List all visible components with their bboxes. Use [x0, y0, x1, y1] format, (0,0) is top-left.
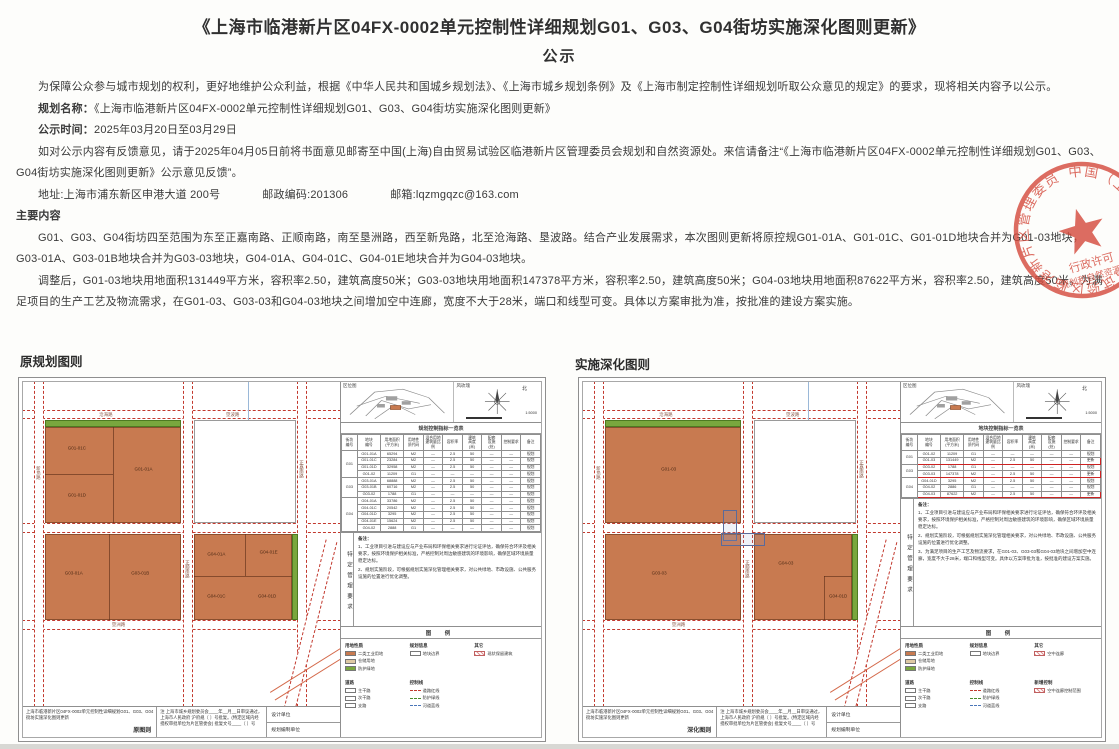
- column-header: 备注: [1081, 435, 1101, 451]
- table-cell: —: [501, 491, 521, 498]
- legend-item-label: 主干路: [358, 688, 371, 694]
- legend-group-title: 控制线: [970, 680, 1033, 686]
- legend-group-title: 道路: [345, 680, 408, 686]
- road: [583, 620, 900, 630]
- table-cell: —: [482, 471, 502, 478]
- titleblock-sheet-name: 原图则: [133, 727, 151, 735]
- road: [23, 410, 340, 420]
- table-cell: —: [1061, 484, 1081, 491]
- page-title: 《上海市临港新片区04FX-0002单元控制性详细规划G01、G03、G04街坊…: [30, 13, 1089, 38]
- table-cell: 50: [462, 464, 482, 471]
- legend-item: 现状保留建筑: [474, 651, 537, 657]
- table-cell: G03-03: [917, 471, 940, 478]
- legend-swatch: [905, 688, 916, 693]
- note-item: 2、规划实施阶段，可根据规划实施深化管理相关要求，对公共绿地、市政设施、公共服务…: [918, 533, 1097, 547]
- block-group-cell: G03: [342, 478, 358, 498]
- updated-parcel-row: G01-03131449M2—2.550——更新: [902, 457, 1101, 464]
- column-header: 混合用地 建筑量比例: [423, 435, 443, 451]
- scalebar-segment: [1053, 417, 1062, 420]
- table-cell: 2.5: [1003, 491, 1023, 498]
- table-cell: 68888: [381, 478, 404, 485]
- sheet-titleblock: 上海市临港新片区04FX-0002单元控制性详细规划G01、G03、G04街坊实…: [23, 706, 340, 737]
- parcel-label: G04-01E: [260, 550, 278, 555]
- table-cell: G01-01D: [357, 464, 380, 471]
- table-cell: 更新: [1081, 491, 1101, 498]
- block-group-cell: G01: [342, 451, 358, 478]
- land-parcel: [605, 427, 741, 523]
- sheet-titleblock: 上海市临港新片区04FX-0002单元控制性详细规划G01、G03、G04街坊实…: [583, 706, 900, 737]
- legend-item-label: 道路红线: [983, 688, 1000, 694]
- windrose-cell: 风玫瑰北1:5000: [454, 382, 541, 422]
- parcel-label: G01-01A: [134, 467, 152, 472]
- windrose-label: 风玫瑰: [1016, 383, 1030, 389]
- legend-group: 用地性质二类工业用地仓储用地防护绿地: [905, 643, 968, 673]
- legend-group: 其它现状保留建筑: [474, 643, 537, 673]
- table-cell: —: [1022, 484, 1042, 491]
- contact-line: 地址:上海市浦东新区申港大道 200号邮政编码:201306邮箱:lqzmgqz…: [16, 185, 1103, 207]
- note-item: 1、工业项目引进与建设应与产业布局和环保相关要求进行论证评估，确保符合环评及相关…: [918, 510, 1097, 531]
- column-header: 容积率: [1003, 435, 1023, 451]
- plan-drawing: 沧海路垦波路垦洲路新凫路正顺南路正嘉南路G01-03G03-03G04-03G0…: [583, 382, 900, 706]
- table-cell: —: [1003, 464, 1023, 471]
- deepened-plan-map-sheet: 沧海路垦波路垦洲路新凫路正顺南路正嘉南路G01-03G03-03G04-03G0…: [578, 377, 1106, 742]
- location-inset-label: 区位图: [903, 383, 917, 389]
- table-cell: M2: [964, 457, 984, 464]
- table-cell: —: [983, 464, 1003, 471]
- legend-item-label: 防护绿线: [983, 695, 1000, 701]
- table-cell: G01-01C: [357, 457, 380, 464]
- table-cell: —: [423, 457, 443, 464]
- table-cell: —: [1042, 471, 1062, 478]
- table-cell: 60716: [381, 484, 404, 491]
- road-name-label: 正嘉南路: [298, 460, 304, 478]
- legend-item: 防护绿线: [970, 695, 1033, 701]
- table-cell: G1: [964, 484, 984, 491]
- notes-title: 备注：: [918, 502, 1097, 509]
- indicator-table-title: 地块控制指标一览表: [901, 423, 1101, 434]
- table-cell: —: [482, 525, 502, 532]
- table-row: G04G04-01D3295M2—2.550——规划: [902, 478, 1101, 485]
- table-cell: M2: [404, 484, 424, 491]
- table-cell: M2: [404, 518, 424, 525]
- legend-section: 图 例用地性质二类工业用地仓储用地防护绿地规划信息地块边界其它空中连廊道路主干路…: [901, 627, 1101, 737]
- road-name-label: 新凫路: [595, 466, 601, 480]
- legend-group-title: 规划信息: [970, 643, 1033, 649]
- parcel-label: G01-01C: [68, 446, 86, 451]
- parcel-label: G03-01A: [65, 571, 83, 576]
- legend-swatch: [410, 698, 421, 699]
- table-cell: G01-02: [917, 451, 940, 458]
- table-cell: —: [482, 511, 502, 518]
- indicator-table-section: 地块控制指标一览表街坊 编号地块 编号用地面积 (平方米)用地性 质代码混合用地…: [901, 423, 1101, 499]
- titleblock-project-name: 上海市临港新片区04FX-0002单元控制性详细规划G01、G03、G04街坊实…: [26, 709, 153, 721]
- legend-item-label: 仓储用地: [358, 658, 375, 664]
- legend-group-title: 其它: [1034, 643, 1097, 649]
- green-buffer-strip: [605, 420, 741, 427]
- design-unit-label: 设计单位: [827, 707, 900, 723]
- legend-item: 道路红线: [970, 688, 1033, 694]
- location-inset-sketch: [341, 385, 453, 420]
- legend-item: 河道蓝线: [970, 703, 1033, 709]
- table-cell: —: [1042, 491, 1062, 498]
- table-cell: 规划: [521, 471, 541, 478]
- table-cell: 规划: [1081, 451, 1101, 458]
- indicator-table-section: 规划控制指标一览表街坊 编号地块 编号用地面积 (平方米)用地性 质代码混合用地…: [341, 423, 541, 533]
- table-cell: G04-02: [357, 525, 380, 532]
- table-cell: —: [443, 471, 463, 478]
- legend-item-label: 河道蓝线: [423, 703, 440, 709]
- table-cell: 1788: [941, 464, 964, 471]
- publicity-time-label: 公示时间：: [38, 124, 94, 136]
- table-cell: 2.5: [443, 457, 463, 464]
- legend-group-title: 控制线: [410, 680, 473, 686]
- table-cell: 规划: [521, 491, 541, 498]
- email-text: 邮箱:lqzmgqzc@163.com: [390, 189, 519, 201]
- legend-item-label: 防护绿地: [358, 666, 375, 672]
- river-line: [248, 382, 252, 421]
- notes-section: 特定管理要求备注：1、工业项目引进与建设应与产业布局和环保相关要求进行论证评估，…: [901, 499, 1101, 627]
- table-cell: G1: [404, 525, 424, 532]
- table-cell: —: [482, 518, 502, 525]
- green-buffer-strip: [45, 420, 181, 427]
- info-column: 区位图风玫瑰北1:5000地块控制指标一览表街坊 编号地块 编号用地面积 (平方…: [900, 382, 1101, 737]
- table-cell: —: [1003, 451, 1023, 458]
- table-cell: —: [1003, 484, 1023, 491]
- legend-group: 控制线道路红线防护绿线河道蓝线: [410, 680, 473, 710]
- column-header: 控制要求: [501, 435, 521, 451]
- table-cell: —: [1061, 491, 1081, 498]
- column-header: 备注: [521, 435, 541, 451]
- updated-parcel-row: G04-0387622M2—2.550——更新: [902, 491, 1101, 498]
- publicity-time-value: 2025年03月20日至03月29日: [94, 124, 237, 136]
- table-cell: G1: [964, 464, 984, 471]
- road-name-label: 沧海路: [99, 412, 113, 418]
- titleblock-project-cell: 上海市临港新片区04FX-0002单元控制性详细规划G01、G03、G04街坊实…: [23, 707, 157, 737]
- road: [23, 620, 340, 630]
- table-cell: —: [482, 464, 502, 471]
- table-row: G03G03-021788G1—————规划: [902, 464, 1101, 471]
- windrose-cell: 风玫瑰北1:5000: [1014, 382, 1101, 422]
- legend-swatch: [345, 666, 356, 671]
- legend-item-label: 仓储用地: [918, 658, 935, 664]
- legend-item: 仓储用地: [905, 658, 968, 664]
- road-name-label: 垦波路: [786, 412, 800, 418]
- parcel-divider: [245, 534, 246, 576]
- scalebar-segment: [1035, 417, 1044, 420]
- table-cell: —: [443, 491, 463, 498]
- legend-swatch: [410, 690, 421, 691]
- table-cell: G04-01C: [357, 505, 380, 512]
- legend-item: 次干路: [345, 695, 408, 701]
- legend-section: 图 例用地性质二类工业用地仓储用地防护绿地规划信息地块边界其它现状保留建筑道路主…: [341, 627, 541, 737]
- compiling-unit-label: 规划编制单位: [267, 723, 340, 738]
- road-name-label: 垦洲路: [672, 622, 686, 628]
- table-cell: 规划: [521, 451, 541, 458]
- table-cell: —: [482, 505, 502, 512]
- table-cell: M2: [404, 451, 424, 458]
- table-row: G04-022888G1—————规划: [342, 525, 541, 532]
- table-cell: G04-02: [917, 484, 940, 491]
- road-name-label: 正嘉南路: [858, 460, 864, 478]
- legend-swatch: [905, 703, 916, 708]
- table-cell: G01-01A: [357, 451, 380, 458]
- table-row: G01G01-0211209G1—————规划: [902, 451, 1101, 458]
- road-name-label: 新凫路: [35, 466, 41, 480]
- table-cell: —: [1042, 478, 1062, 485]
- intro-paragraph: 为保障公众参与城市规划的权利，更好地维护公众利益，根据《中华人民共和国城乡规划法…: [16, 77, 1103, 99]
- parcel-label: G04-01D: [258, 593, 276, 598]
- table-cell: —: [1022, 464, 1042, 471]
- north-label: 北: [522, 385, 527, 392]
- table-cell: —: [423, 478, 443, 485]
- publicity-time-line: 公示时间：2025年03月20日至03月29日: [16, 120, 1103, 142]
- road-name-label: 垦洲路: [112, 622, 126, 628]
- legend-swatch: [905, 651, 916, 656]
- legend-grid: 用地性质二类工业用地仓储用地防护绿地规划信息地块边界其它现状保留建筑道路主干路次…: [341, 639, 541, 714]
- table-cell: 2.5: [443, 484, 463, 491]
- table-cell: M2: [404, 478, 424, 485]
- original-plan-map-sheet: 沧海路垦波路垦洲路新凫路正顺南路正嘉南路G01-01CG01-01AG01-01…: [18, 377, 546, 742]
- block-group-cell: G04: [342, 498, 358, 532]
- table-cell: —: [501, 478, 521, 485]
- legend-item: 二类工业用地: [905, 651, 968, 657]
- parcel-divider: [194, 576, 292, 577]
- legend-title: 图 例: [341, 627, 541, 639]
- drawing-column: 沧海路垦波路垦洲路新凫路正顺南路正嘉南路G01-01CG01-01AG01-01…: [23, 382, 340, 737]
- table-cell: 2.5: [443, 464, 463, 471]
- table-cell: 2.5: [443, 505, 463, 512]
- legend-item-label: 空中连廊: [1047, 651, 1064, 657]
- table-cell: —: [423, 498, 443, 505]
- table-cell: —: [462, 471, 482, 478]
- legend-item: 主干路: [905, 688, 968, 694]
- table-cell: —: [423, 491, 443, 498]
- road-name-label: 正顺南路: [744, 560, 750, 578]
- table-cell: 2888: [381, 525, 404, 532]
- table-row: G04-01E15624M2—2.550——规划: [342, 518, 541, 525]
- table-cell: G03-02: [917, 464, 940, 471]
- special-management-vertical-label: 特定管理要求: [341, 533, 354, 626]
- table-cell: 2.5: [443, 478, 463, 485]
- legend-item-label: 防护绿地: [918, 666, 935, 672]
- titleblock-approval-cell: 注 上海市城乡规划委员会____年__月__日审议通过，上海市人民政府 沪府规〔…: [717, 707, 827, 737]
- legend-item-label: 地块边界: [983, 651, 1000, 657]
- legend-swatch: [970, 705, 981, 706]
- legend-item: 地块边界: [410, 651, 473, 657]
- table-cell: 更新: [1081, 471, 1101, 478]
- block-group-cell: G04: [902, 478, 918, 498]
- legend-item: 防护绿地: [345, 666, 408, 672]
- table-row: G01-0211209G1—————规划: [342, 471, 541, 478]
- legend-group-title: 道路: [905, 680, 968, 686]
- table-cell: M2: [404, 464, 424, 471]
- main-content-paragraph-2: 调整后，G01-03地块用地面积131449平方米，容积率2.50，建筑高度50…: [16, 271, 1103, 314]
- indicator-table: 街坊 编号地块 编号用地面积 (平方米)用地性 质代码混合用地 建筑量比例容积率…: [341, 434, 541, 532]
- legend-swatch: [345, 703, 356, 708]
- table-cell: G01-02: [357, 471, 380, 478]
- titleblock-sheet-name: 深化图则: [687, 727, 711, 735]
- table-cell: 更新: [1081, 457, 1101, 464]
- table-row: G03-01B60716M2—2.550——规划: [342, 484, 541, 491]
- legend-item-label: 现状保留建筑: [487, 651, 512, 657]
- legend-group-title: 其它: [474, 643, 537, 649]
- scalebar-segment: [466, 417, 475, 420]
- legend-item-label: 支路: [918, 703, 926, 709]
- column-header: 用地性 质代码: [964, 435, 984, 451]
- table-cell: —: [501, 525, 521, 532]
- legend-swatch: [905, 696, 916, 701]
- titleblock-project-name: 上海市临港新片区04FX-0002单元控制性详细规划G01、G03、G04街坊实…: [586, 709, 713, 721]
- table-cell: 11209: [381, 471, 404, 478]
- column-header: 地块 编号: [917, 435, 940, 451]
- column-header: 地块 编号: [357, 435, 380, 451]
- column-header: 配套 设施 (处): [1042, 435, 1062, 451]
- table-cell: 2.5: [1003, 471, 1023, 478]
- scalebar: [1026, 417, 1062, 420]
- table-cell: —: [423, 471, 443, 478]
- right-map-section-label: 实施深化图则: [575, 354, 650, 373]
- legend-swatch: [345, 651, 356, 656]
- legend-swatch: [970, 690, 981, 691]
- column-header: 街坊 编号: [902, 435, 918, 451]
- inset-row: 区位图风玫瑰北1:5000: [901, 382, 1101, 423]
- table-cell: —: [983, 451, 1003, 458]
- column-header: 配套 设施 (处): [482, 435, 502, 451]
- legend-item: 仓储用地: [345, 658, 408, 664]
- legend-swatch: [410, 705, 421, 706]
- table-cell: —: [983, 491, 1003, 498]
- notes-body: 备注：1、工业项目引进与建设应与产业布局和环保相关要求进行论证评估，确保符合环评…: [354, 533, 541, 626]
- legend-item-label: 防护绿线: [423, 695, 440, 701]
- legend-group-title: 用地性质: [905, 643, 968, 649]
- legend-item: 主干路: [345, 688, 408, 694]
- inset-row: 区位图风玫瑰北1:5000: [341, 382, 541, 423]
- table-cell: G04-03: [917, 491, 940, 498]
- windrose-label: 风玫瑰: [456, 383, 470, 389]
- indicator-table-header: 街坊 编号地块 编号用地面积 (平方米)用地性 质代码混合用地 建筑量比例容积率…: [902, 435, 1101, 451]
- titleblock-approval-line: 授权审批单位为片区管委会) 批复文号____〔 〕号: [720, 721, 823, 727]
- legend-swatch: [905, 666, 916, 671]
- scalebar-segment: [475, 417, 484, 420]
- column-header: 用地面积 (平方米): [941, 435, 964, 451]
- table-row: G04-022886G1—————规划: [902, 484, 1101, 491]
- table-cell: —: [501, 505, 521, 512]
- block-group-cell: G03: [902, 464, 918, 477]
- parcel-divider: [824, 576, 825, 620]
- table-cell: 2.5: [443, 511, 463, 518]
- road: [23, 523, 340, 533]
- table-cell: 131449: [941, 457, 964, 464]
- table-row: G01-01C23284M2—2.550——规划: [342, 457, 541, 464]
- parcel-label: G04-01A: [207, 551, 225, 556]
- table-cell: G03-01A: [357, 478, 380, 485]
- road-name-label: 垦波路: [226, 412, 240, 418]
- table-cell: M2: [404, 505, 424, 512]
- drawing-column: 沧海路垦波路垦洲路新凫路正顺南路正嘉南路G01-03G03-03G04-03G0…: [583, 382, 900, 737]
- table-cell: 1788: [381, 491, 404, 498]
- table-cell: —: [482, 478, 502, 485]
- table-cell: 50: [462, 505, 482, 512]
- table-cell: 65294: [381, 451, 404, 458]
- notes-section: 特定管理要求备注：1、工业项目引进与建设应与产业布局和环保相关要求进行论证评估，…: [341, 533, 541, 627]
- table-cell: —: [983, 484, 1003, 491]
- road: [583, 410, 900, 420]
- table-cell: 50: [1022, 491, 1042, 498]
- table-cell: 87622: [941, 491, 964, 498]
- legend-item: 地块边界: [970, 651, 1033, 657]
- table-cell: 2.5: [443, 451, 463, 458]
- table-cell: —: [482, 491, 502, 498]
- table-cell: 15624: [381, 518, 404, 525]
- table-cell: —: [482, 484, 502, 491]
- table-cell: —: [983, 478, 1003, 485]
- scalebar-segment: [1026, 417, 1035, 420]
- parcel-label: G04-01D: [829, 593, 847, 598]
- table-row: G04-01C20542M2—2.550——规划: [342, 505, 541, 512]
- table-cell: —: [983, 471, 1003, 478]
- legend-group: 道路主干路次干路支路: [345, 680, 408, 710]
- table-cell: —: [462, 491, 482, 498]
- table-cell: —: [983, 457, 1003, 464]
- scalebar-segment: [493, 417, 502, 420]
- table-cell: —: [501, 451, 521, 458]
- table-cell: 50: [1022, 478, 1042, 485]
- table-cell: M2: [964, 491, 984, 498]
- table-cell: —: [1042, 484, 1062, 491]
- legend-item: 支路: [905, 703, 968, 709]
- table-cell: G04-01E: [357, 518, 380, 525]
- table-cell: 147378: [941, 471, 964, 478]
- legend-group-title: 规划信息: [410, 643, 473, 649]
- air-corridor-marker: [721, 533, 765, 546]
- plan-name-label: 规划名称：: [38, 103, 94, 115]
- table-cell: 2.5: [443, 498, 463, 505]
- legend-grid: 用地性质二类工业用地仓储用地防护绿地规划信息地块边界其它空中连廊道路主干路次干路…: [901, 639, 1101, 714]
- column-header: 用地性 质代码: [404, 435, 424, 451]
- table-row: G01-01D32958M2—2.550——规划: [342, 464, 541, 471]
- legend-swatch: [970, 651, 981, 656]
- table-cell: —: [501, 464, 521, 471]
- scalebar: [466, 417, 502, 420]
- table-cell: —: [482, 451, 502, 458]
- table-row: G01G01-01A65294M2—2.550——规划: [342, 451, 541, 458]
- legend-item: 道路红线: [410, 688, 473, 694]
- scalebar-segment: [484, 417, 493, 420]
- legend-item-label: 道路红线: [423, 688, 440, 694]
- legend-item-label: 二类工业用地: [358, 651, 383, 657]
- legend-item: 空中连廊: [1034, 651, 1097, 657]
- column-header: 建筑 高度 (米): [462, 435, 482, 451]
- column-header: 街坊 编号: [342, 435, 358, 451]
- road-name-label: 正顺南路: [184, 560, 190, 578]
- location-inset-sketch: [901, 385, 1013, 420]
- plan-name-value: 《上海市临港新片区04FX-0002单元控制性详细规划G01、G03、G04街坊…: [94, 103, 556, 115]
- table-cell: —: [1061, 478, 1081, 485]
- table-cell: 规划: [521, 505, 541, 512]
- table-cell: G1: [404, 471, 424, 478]
- main-content-heading: 主要内容: [16, 206, 1103, 228]
- parcel-divider: [113, 427, 114, 523]
- location-inset-cell: 区位图: [341, 382, 454, 422]
- table-cell: G04-01A: [357, 498, 380, 505]
- table-cell: 2.5: [443, 518, 463, 525]
- titleblock-approval-line: 授权审批单位为片区管委会) 批复文号____〔 〕号: [160, 721, 263, 727]
- table-cell: —: [462, 525, 482, 532]
- table-cell: —: [423, 525, 443, 532]
- legend-item: 防护绿线: [410, 695, 473, 701]
- table-cell: G03-01B: [357, 484, 380, 491]
- legend-item-label: 次干路: [918, 695, 931, 701]
